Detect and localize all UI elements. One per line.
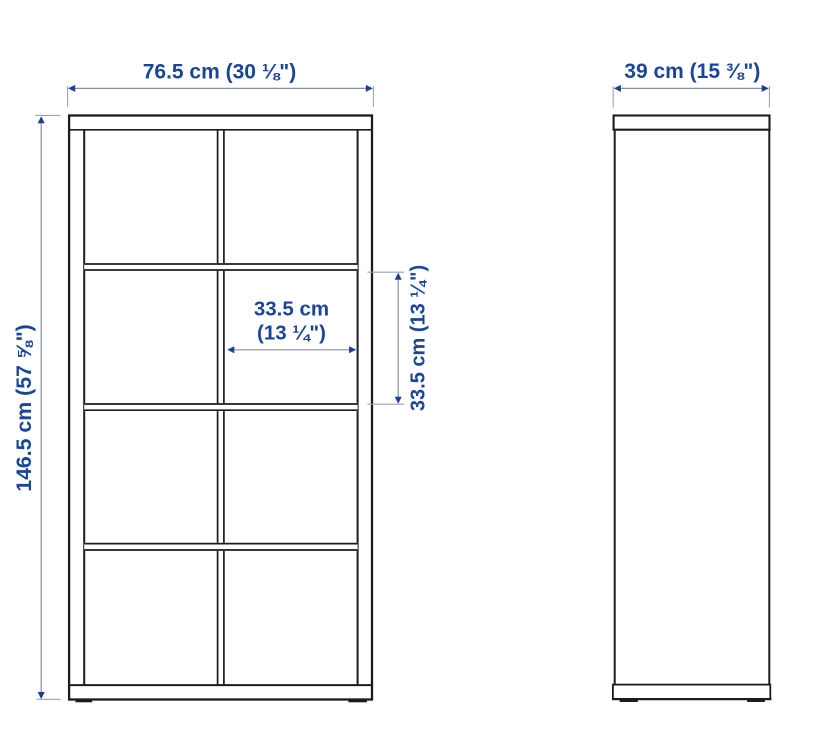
- svg-text:(13 ¼"): (13 ¼"): [257, 322, 326, 345]
- svg-text:33.5 cm (13 ¼"): 33.5 cm (13 ¼"): [407, 265, 429, 411]
- svg-text:33.5 cm: 33.5 cm: [254, 297, 329, 320]
- svg-text:39 cm (15 ⅜"): 39 cm (15 ⅜"): [624, 60, 760, 83]
- svg-text:146.5 cm (57 ⅝"): 146.5 cm (57 ⅝"): [12, 324, 36, 492]
- svg-text:76.5 cm (30 ⅛"): 76.5 cm (30 ⅛"): [143, 60, 297, 83]
